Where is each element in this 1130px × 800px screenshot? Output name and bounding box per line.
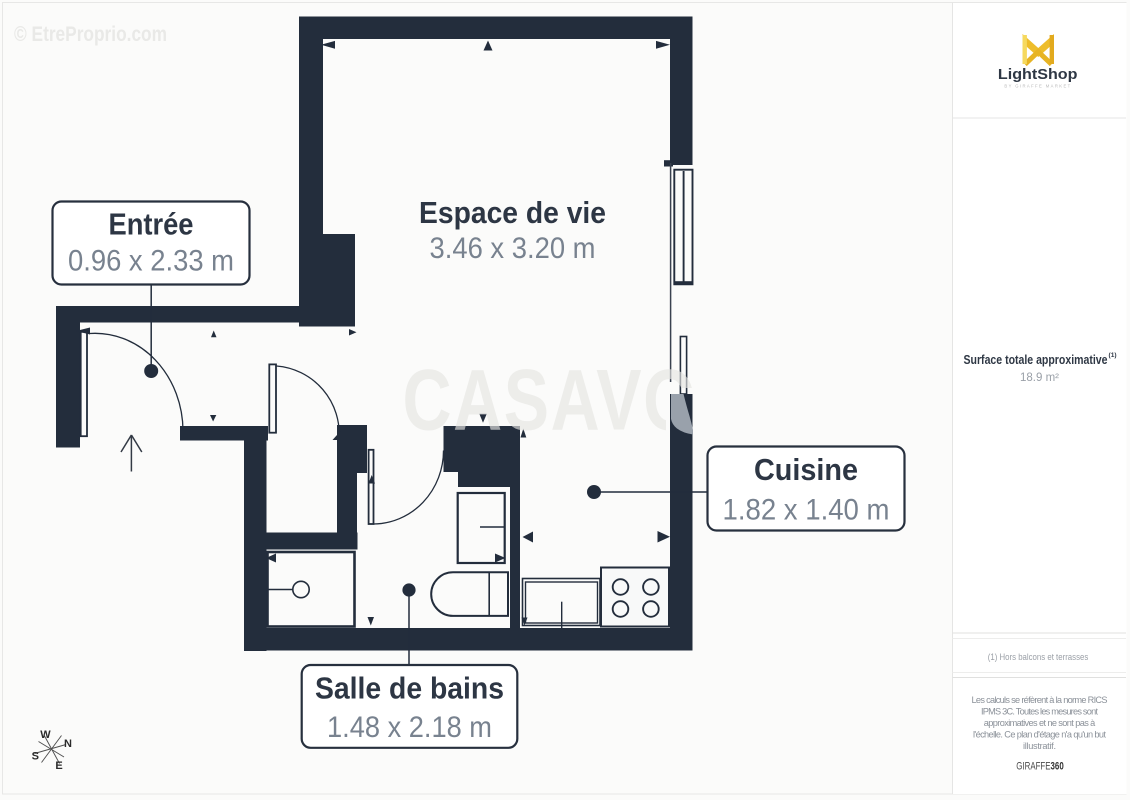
svg-text:LightShop: LightShop bbox=[998, 66, 1078, 83]
svg-text:Entrée: Entrée bbox=[109, 208, 194, 242]
svg-text:illustratif.: illustratif. bbox=[1023, 741, 1056, 751]
svg-text:Cuisine: Cuisine bbox=[754, 453, 858, 487]
svg-text:18.9 m²: 18.9 m² bbox=[1020, 372, 1059, 384]
svg-text:Salle de bains: Salle de bains bbox=[315, 672, 504, 706]
svg-text:l'échelle. Ce plan d'étage n'a: l'échelle. Ce plan d'étage n'a qu'un but bbox=[973, 730, 1106, 740]
svg-text:E: E bbox=[55, 760, 62, 772]
svg-text:1.82 x 1.40 m: 1.82 x 1.40 m bbox=[723, 494, 890, 527]
svg-text:GIRAFFE360: GIRAFFE360 bbox=[1016, 761, 1064, 773]
svg-text:S: S bbox=[32, 751, 39, 763]
svg-text:Les calculs se réfèrent à la n: Les calculs se réfèrent à la norme RICS bbox=[972, 695, 1108, 705]
svg-text:IPMS 3C. Toutes les mesures so: IPMS 3C. Toutes les mesures sont bbox=[981, 707, 1098, 717]
svg-text:W: W bbox=[40, 729, 51, 741]
svg-text:3.46 x 3.20 m: 3.46 x 3.20 m bbox=[430, 232, 596, 265]
svg-text:N: N bbox=[64, 738, 72, 750]
svg-text:1.48 x 2.18 m: 1.48 x 2.18 m bbox=[327, 711, 492, 744]
svg-text:© EtreProprio.com: © EtreProprio.com bbox=[14, 22, 167, 46]
svg-text:CASAVO: CASAVO bbox=[402, 353, 697, 448]
svg-text:BY GIRAFFE MARKET: BY GIRAFFE MARKET bbox=[1004, 84, 1071, 89]
svg-text:Surface totale approximative: Surface totale approximative bbox=[964, 353, 1108, 367]
svg-text:0.96 x 2.33 m: 0.96 x 2.33 m bbox=[68, 244, 234, 277]
svg-text:Espace de vie: Espace de vie bbox=[419, 195, 606, 230]
svg-text:(1) Hors balcons et terrasses: (1) Hors balcons et terrasses bbox=[988, 652, 1089, 662]
svg-text:approximatives et ne sont pas: approximatives et ne sont pas à bbox=[984, 718, 1096, 728]
svg-text:(1): (1) bbox=[1109, 352, 1117, 359]
